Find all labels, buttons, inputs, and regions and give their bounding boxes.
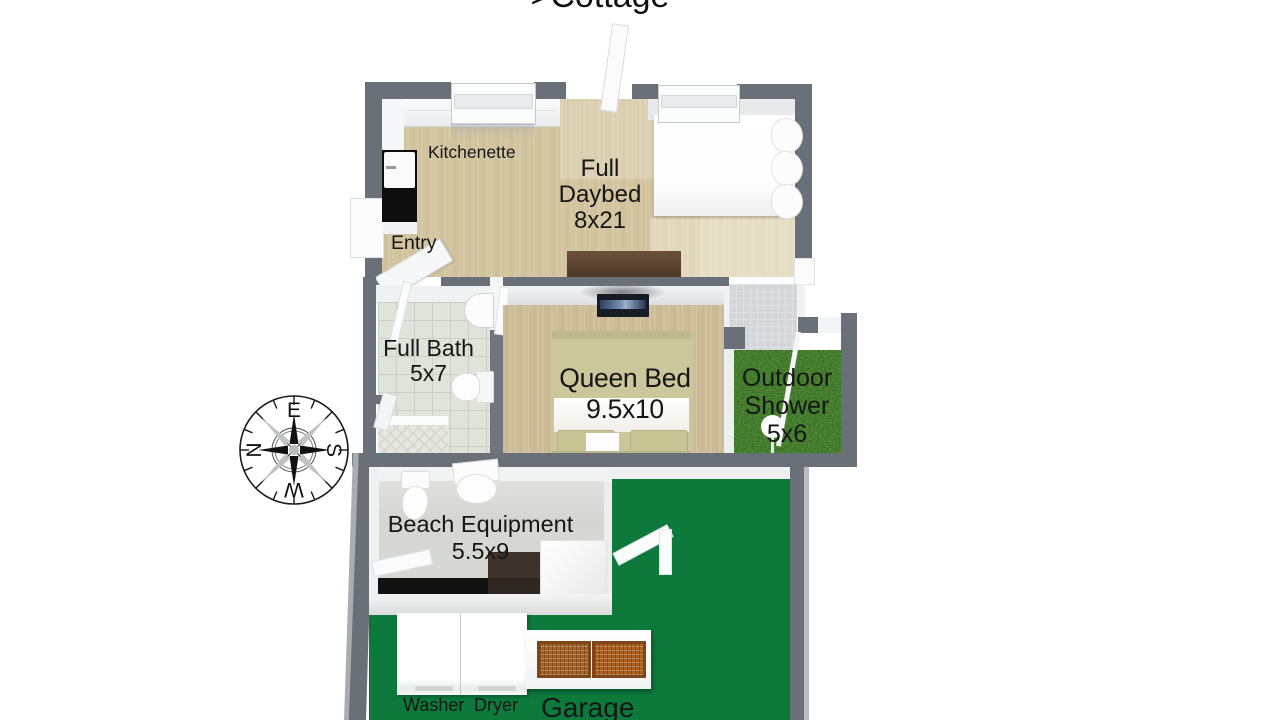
svg-text:E: E: [287, 399, 301, 422]
svg-text:N: N: [243, 442, 266, 457]
svg-text:W: W: [284, 478, 304, 501]
svg-text:S: S: [322, 443, 345, 457]
